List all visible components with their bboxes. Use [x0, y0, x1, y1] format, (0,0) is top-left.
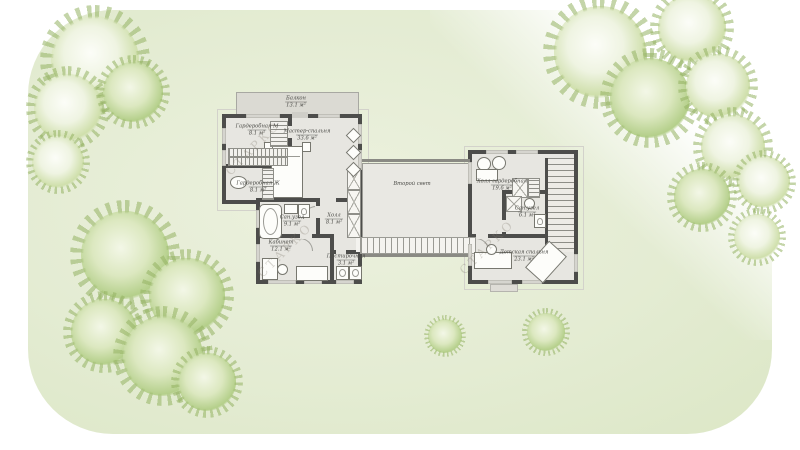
dryer-machine: [349, 266, 362, 280]
room-label-hall: Холл 8.1 м²: [325, 213, 343, 226]
room-label-bathroom-kids: Сан.узел 6.1 м²: [515, 206, 539, 219]
room-label-balcony: Балкон 13.1 м²: [285, 96, 307, 109]
window: [516, 150, 538, 154]
staircase: [548, 158, 574, 252]
room-label-laundry: Постирочная 3.1 м²: [327, 254, 366, 267]
window: [222, 150, 226, 166]
room-label-master-bedroom: Мастер-спальня 33.6 м²: [284, 129, 331, 142]
window: [488, 280, 512, 284]
window: [574, 254, 578, 272]
window: [246, 114, 280, 118]
room-label-void: Второй свет: [393, 181, 430, 187]
balcony-door: [292, 112, 308, 118]
tree: [674, 169, 730, 225]
door-opening: [320, 197, 336, 206]
double-height-void: [362, 163, 472, 239]
window: [336, 280, 354, 284]
closet: [347, 214, 361, 238]
tree: [178, 353, 236, 411]
tree: [32, 136, 84, 188]
void-bottom-wall: [362, 254, 470, 257]
sofa: [296, 266, 328, 281]
bridge-walkway: [360, 237, 476, 254]
window: [268, 280, 296, 284]
washing-machine: [336, 266, 349, 280]
tree: [738, 156, 790, 208]
wardrobe-shelving: [528, 178, 540, 198]
tree: [527, 313, 565, 351]
armchair: [492, 156, 506, 170]
window: [318, 114, 340, 118]
window: [222, 128, 226, 144]
window: [468, 162, 472, 184]
washbasin: [284, 204, 298, 214]
room-label-kids-bedroom: Детская спальня 23.1 м²: [500, 250, 549, 263]
door-opening: [315, 206, 321, 218]
room-label-wardrobe-f: Гардеробная Ж 8.1 м²: [236, 181, 279, 194]
nightstand: [302, 142, 311, 152]
tree: [734, 214, 780, 260]
tree: [610, 58, 690, 138]
porch-step: [490, 284, 518, 292]
window: [256, 244, 260, 262]
bathtub: [259, 204, 282, 239]
tree: [428, 319, 462, 353]
closet: [347, 190, 361, 214]
void-top-wall: [362, 159, 470, 162]
window: [486, 150, 508, 154]
room-label-hall-wardrobe: Холл-гардеробная 19.6 м²: [477, 179, 527, 192]
tree: [103, 62, 163, 122]
site-plan-canvas: Балкон 13.1 м² Гардеробная М 8.1 м² Маст…: [0, 0, 800, 450]
